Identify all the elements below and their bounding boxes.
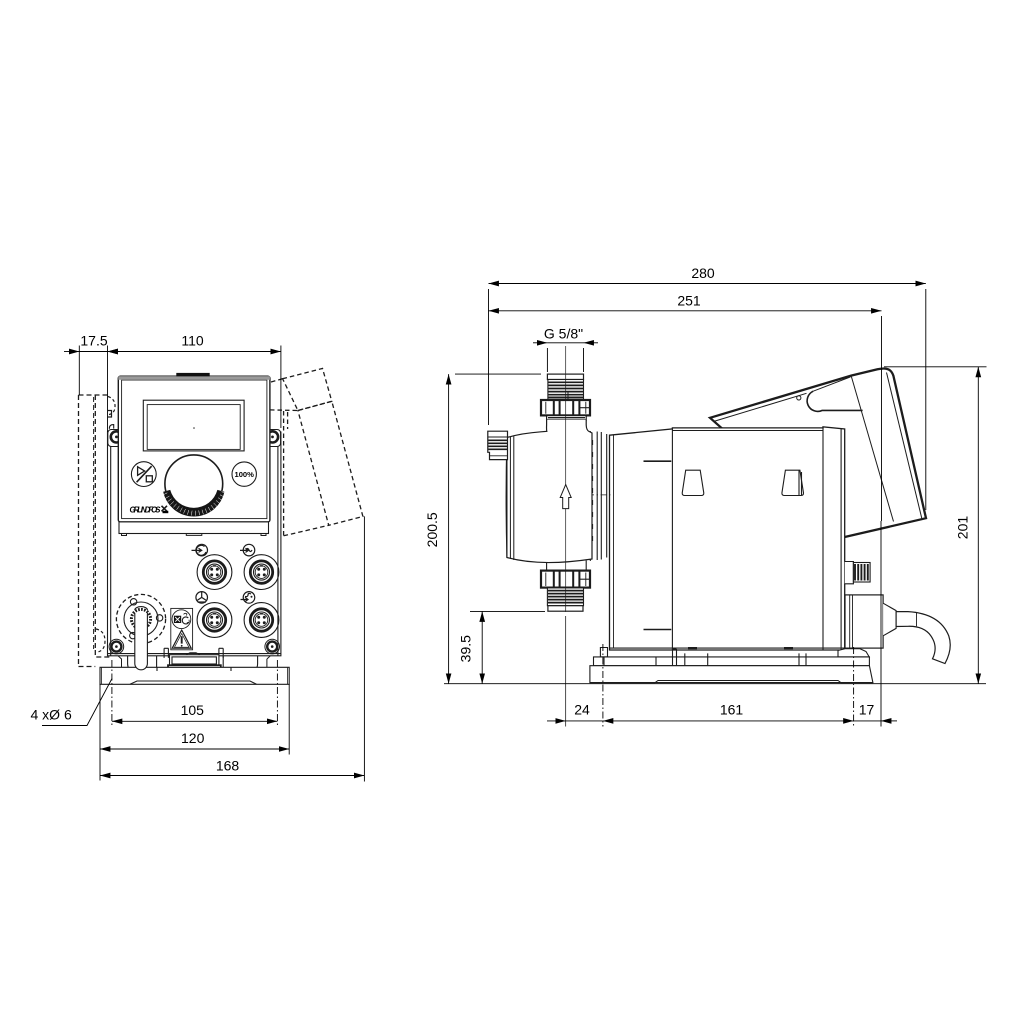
svg-text:200.5: 200.5 <box>424 512 440 547</box>
svg-text:110: 110 <box>181 333 204 349</box>
svg-text:4 xØ 6: 4 xØ 6 <box>31 707 72 723</box>
svg-text:161: 161 <box>720 702 744 718</box>
svg-text:280: 280 <box>691 265 715 281</box>
svg-text:168: 168 <box>216 758 240 774</box>
svg-text:GRUNDFOS: GRUNDFOS <box>130 505 162 514</box>
svg-text:17.5: 17.5 <box>80 333 107 349</box>
svg-text:G 5/8": G 5/8" <box>544 326 583 342</box>
svg-text:100%: 100% <box>234 470 254 479</box>
svg-text:39.5: 39.5 <box>458 635 474 662</box>
svg-text:24: 24 <box>574 702 590 718</box>
svg-text:251: 251 <box>677 292 701 308</box>
svg-text:201: 201 <box>955 516 971 540</box>
svg-text:120: 120 <box>181 730 205 746</box>
svg-text:105: 105 <box>181 702 205 718</box>
svg-text:17: 17 <box>859 702 875 718</box>
